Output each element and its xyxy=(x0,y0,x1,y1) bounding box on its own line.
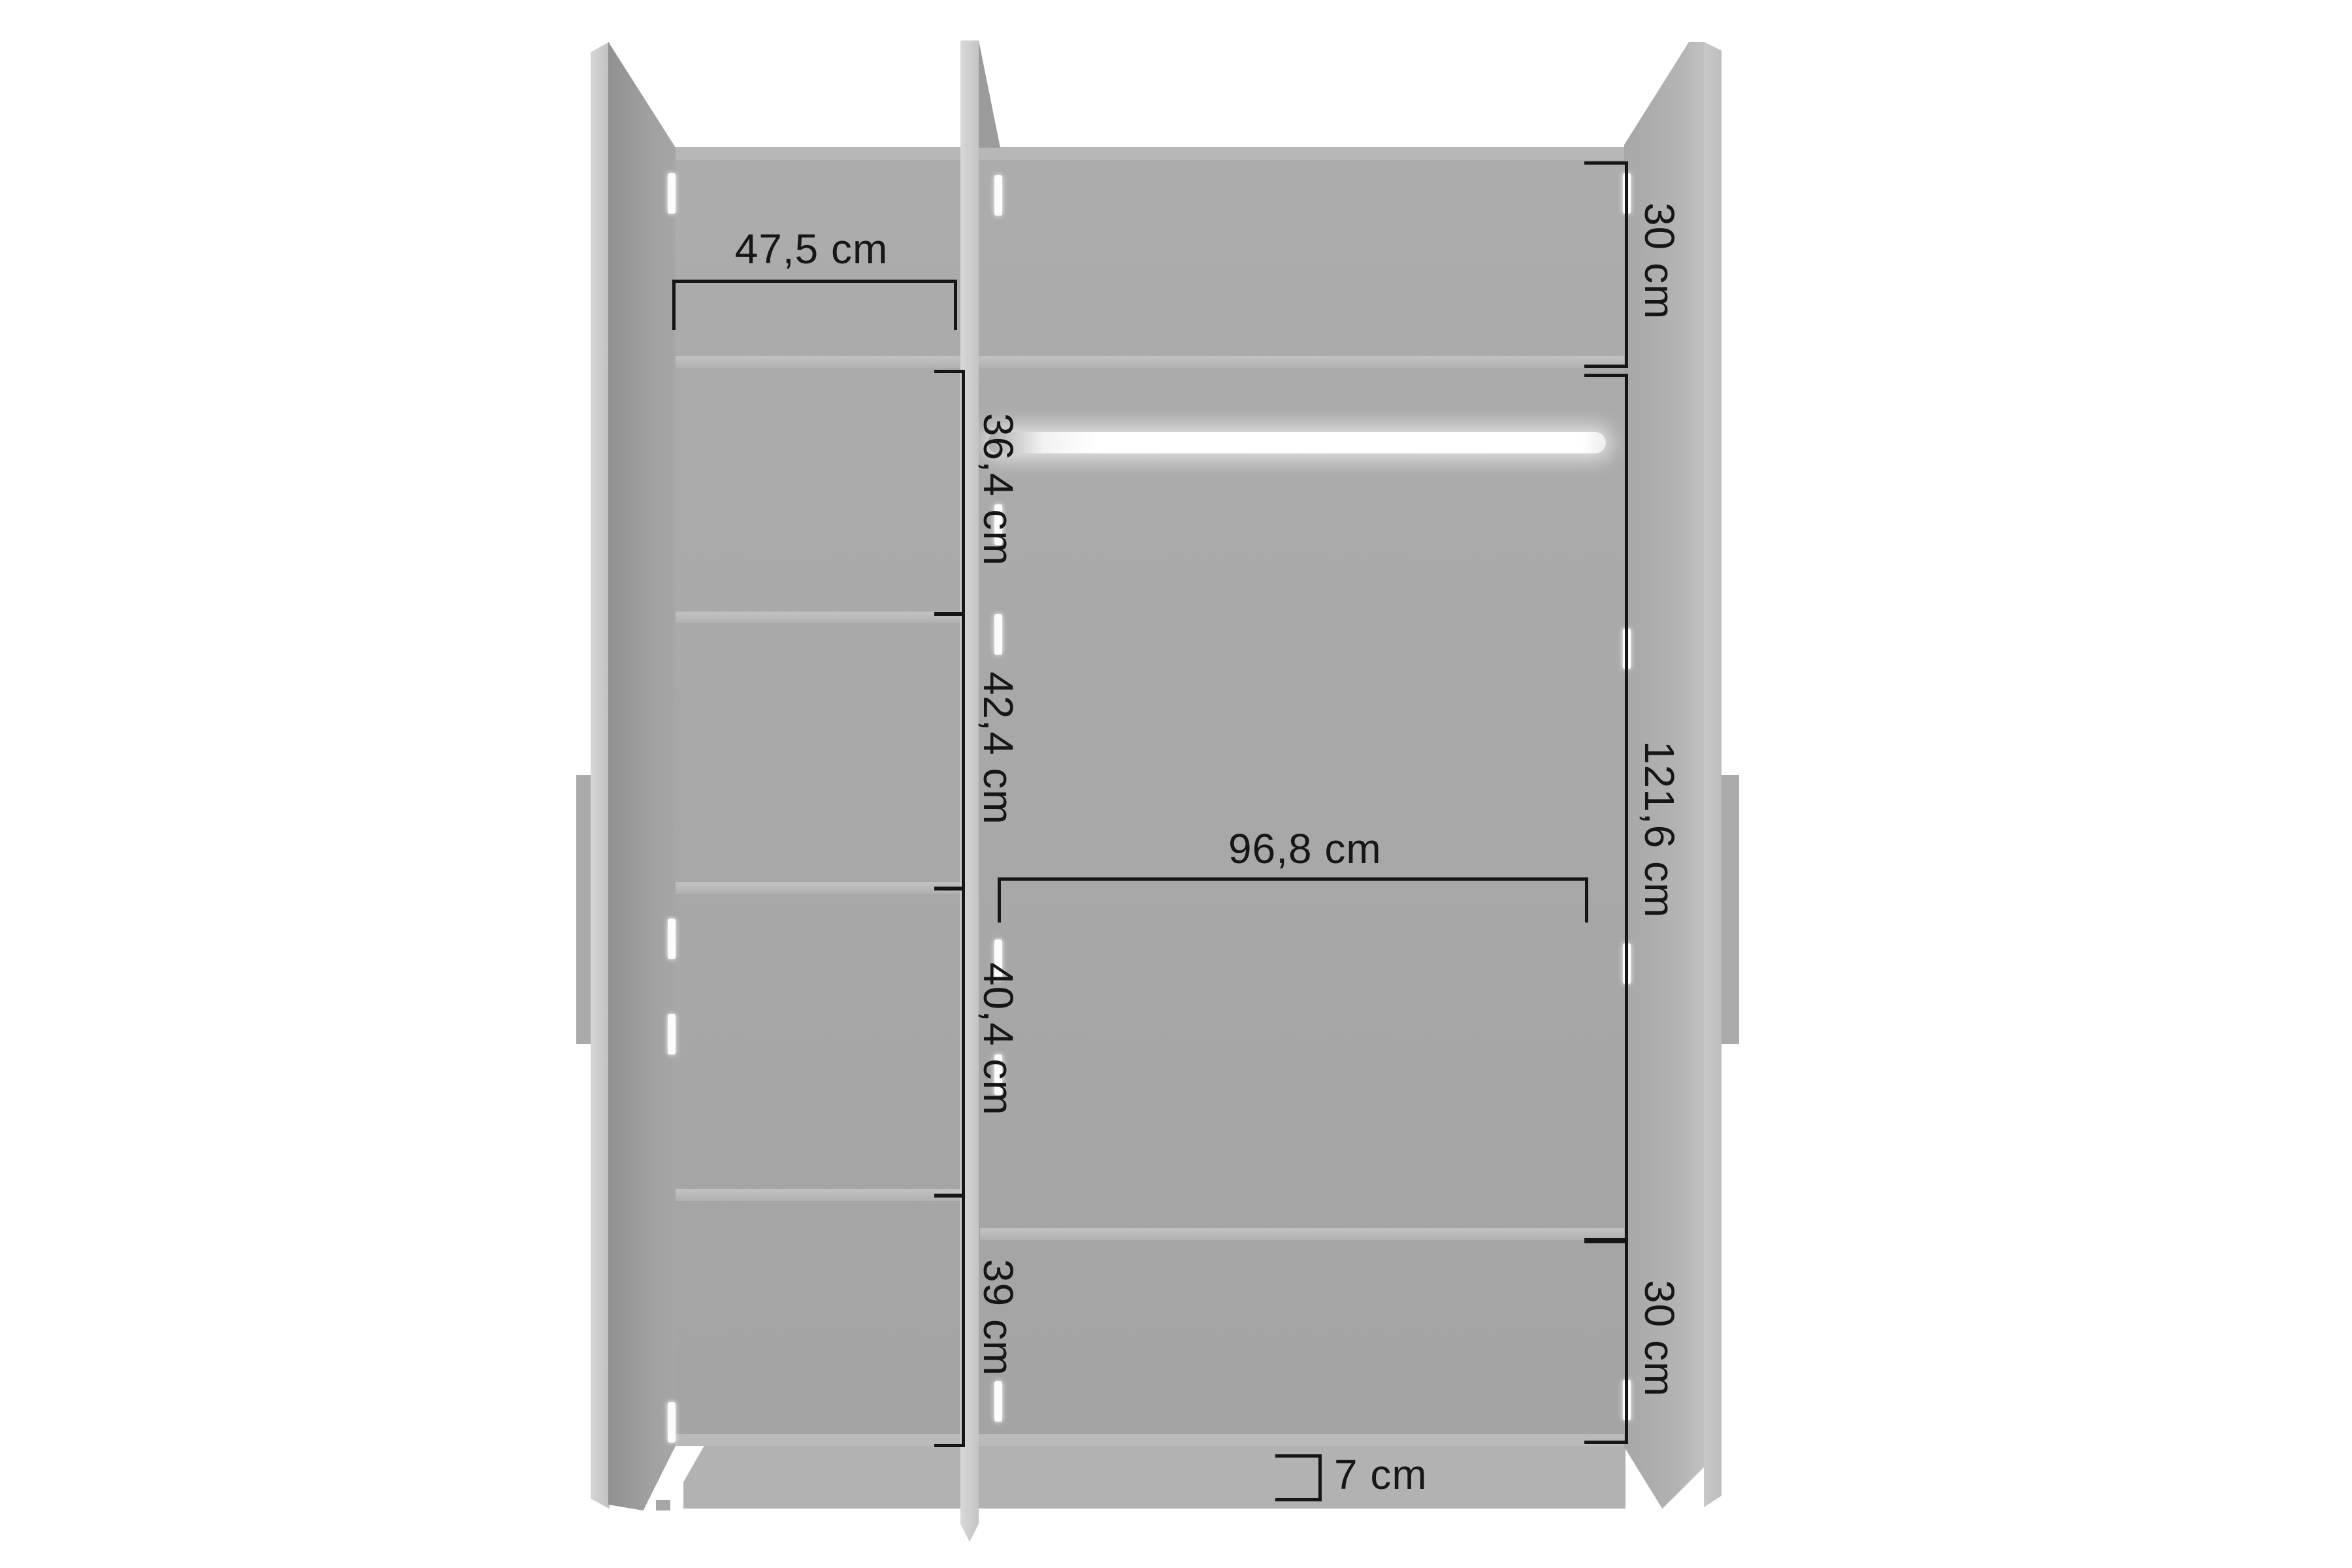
dim-label-hanging-width: 96,8 cm xyxy=(1228,825,1594,873)
cabinet-bottom-panel xyxy=(674,1434,1625,1446)
dim-label-shelf-width: 47,5 cm xyxy=(681,225,942,273)
hinge-mark xyxy=(668,1014,676,1054)
hinge-mark xyxy=(668,173,676,214)
dim-label-left-gap-4: 39 cm xyxy=(971,1194,1026,1441)
hinge-mark xyxy=(668,919,676,959)
left-shelf-3 xyxy=(674,882,963,894)
center-divider-top-bevel xyxy=(979,41,1000,148)
dim-label-left-gap-1: 36,4 cm xyxy=(971,370,1026,609)
dim-bracket-left-gap-3 xyxy=(934,887,965,1197)
left-door-edge xyxy=(591,42,610,1512)
shelf-pin-mark xyxy=(994,175,1002,216)
dim-bracket-right-bottom-shelf xyxy=(1584,1240,1628,1444)
dim-bracket-left-gap-2 xyxy=(934,613,965,890)
dim-bracket-right-top-shelf xyxy=(1584,161,1628,368)
dim-label-left-gap-3: 40,4 cm xyxy=(971,887,1026,1190)
right-door-edge xyxy=(1704,42,1722,1512)
cabinet-top-panel-edge xyxy=(674,147,1625,160)
top-shelf xyxy=(674,356,1625,368)
left-shelf-2 xyxy=(674,612,963,623)
dim-bracket-hanging-width xyxy=(998,877,1588,923)
hinge-mark xyxy=(668,1402,676,1443)
cabinet-interior xyxy=(674,147,1625,1446)
dim-bracket-hanging-height xyxy=(1584,374,1628,1241)
right-bottom-shelf xyxy=(980,1228,1625,1240)
dim-bracket-plinth-height xyxy=(1275,1454,1322,1501)
dim-bracket-left-gap-4 xyxy=(934,1194,965,1447)
left-foot xyxy=(656,1500,670,1511)
left-shelf-4 xyxy=(674,1189,963,1201)
left-door-panel xyxy=(608,42,676,1511)
wardrobe-dimension-diagram: 47,5 cm 36,4 cm 42,4 cm 40,4 cm 39 cm 30… xyxy=(0,0,2352,1568)
dim-label-plinth-height: 7 cm xyxy=(1334,1453,1530,1496)
dim-label-left-gap-2: 42,4 cm xyxy=(971,613,1026,883)
dim-label-right-top-shelf: 30 cm xyxy=(1632,161,1687,361)
dim-label-right-bottom-shelf: 30 cm xyxy=(1632,1240,1687,1437)
dim-label-hanging-height: 121,6 cm xyxy=(1632,425,1687,1235)
hanging-rod xyxy=(988,432,1606,453)
dim-bracket-left-gap-1 xyxy=(934,370,965,615)
dim-bracket-shelf-width xyxy=(672,280,957,330)
